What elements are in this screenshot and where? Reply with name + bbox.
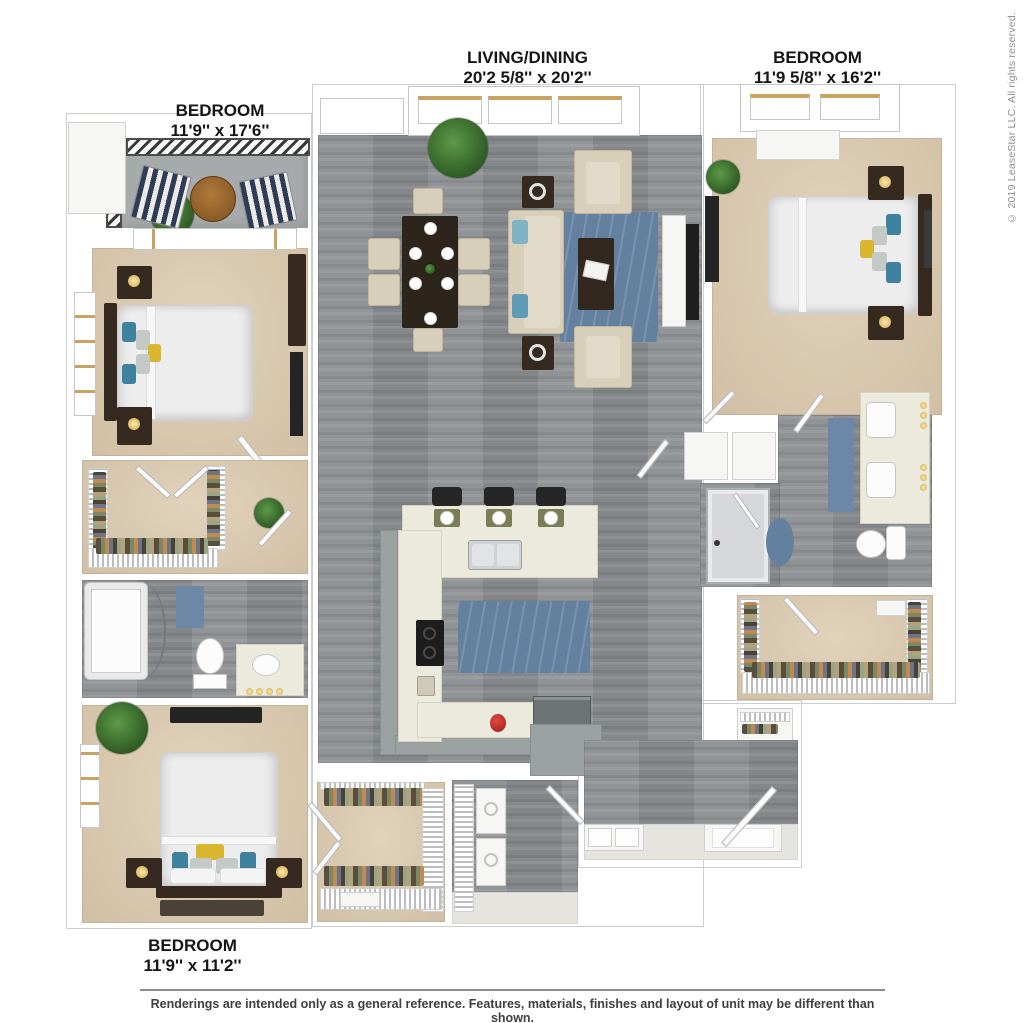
vanity-light — [276, 688, 283, 695]
bath-mat-blue — [176, 586, 204, 628]
toilet — [196, 638, 224, 674]
side-table-decor — [529, 344, 546, 361]
armchair-seat — [586, 336, 620, 378]
bedroom-tl-tv — [290, 352, 303, 436]
place-setting — [441, 277, 454, 290]
room-name: BEDROOM — [735, 48, 900, 68]
balcony-table — [190, 176, 236, 222]
sofa-pillow-teal — [512, 294, 528, 318]
pillow-white — [170, 868, 216, 884]
wall-art-frame — [924, 210, 932, 268]
sink-basin — [497, 544, 519, 566]
bay-window-pane — [488, 96, 552, 124]
bar-plate — [492, 511, 506, 525]
front-door-mat — [712, 828, 774, 848]
bedroom-tl-window-left — [74, 292, 96, 416]
place-setting — [409, 277, 422, 290]
room-name: LIVING/DINING — [430, 48, 625, 68]
kitchen-cabinet-left — [380, 530, 398, 755]
vanity-light — [920, 402, 927, 409]
label-bedroom-bottom: BEDROOM 11'9'' x 11'2'' — [110, 936, 275, 977]
room-dims: 11'9'' x 17'6'' — [120, 121, 320, 141]
pillow-white — [220, 868, 266, 884]
vanity-sink — [866, 402, 896, 438]
lamp — [276, 866, 288, 878]
closet-shelf-box — [340, 892, 380, 907]
hanging-clothes — [96, 538, 208, 554]
dining-chair — [458, 238, 490, 270]
shower-drain — [714, 540, 720, 546]
burner — [423, 627, 436, 640]
dining-chair — [368, 274, 400, 306]
copyright-notice: © 2019 LeaseStar LLC. All rights reserve… — [1006, 12, 1018, 224]
room-name: BEDROOM — [120, 101, 320, 121]
bedroom-tl-dresser — [288, 254, 306, 346]
pillow-teal — [122, 322, 136, 342]
bath-rug-oval — [766, 518, 794, 566]
closet-shelf — [320, 888, 442, 910]
toaster — [417, 676, 435, 696]
closet-shelf — [740, 712, 790, 722]
room-dims: 11'9'' x 11'2'' — [110, 956, 275, 976]
sofa-pillow-teal — [512, 220, 528, 244]
hall-closet — [684, 432, 728, 480]
bedroom-b-tv — [170, 707, 262, 723]
bar-plate — [544, 511, 558, 525]
label-bedroom-top-right: BEDROOM 11'9 5/8'' x 16'2'' — [735, 48, 900, 89]
vanity-sink — [252, 654, 280, 676]
side-table-decor — [529, 183, 546, 200]
lamp — [128, 275, 140, 287]
dining-chair — [413, 328, 443, 352]
hanging-clothes — [207, 470, 220, 546]
toilet — [856, 530, 886, 558]
closet-shelf-box — [876, 600, 906, 616]
lamp — [136, 866, 148, 878]
pillow-teal — [886, 214, 901, 235]
toilet-tank — [193, 674, 227, 689]
vanity-light — [246, 688, 253, 695]
bar-stool — [432, 487, 462, 506]
pillow-teal — [886, 262, 901, 283]
label-living-dining: LIVING/DINING 20'2 5/8'' x 20'2'' — [430, 48, 625, 89]
hanging-clothes — [742, 724, 778, 734]
balcony-planter-box — [68, 122, 126, 214]
vanity-light — [920, 474, 927, 481]
bar-plate — [440, 511, 454, 525]
armchair-seat — [586, 162, 620, 204]
entry-closet-door-panel — [588, 828, 612, 847]
vanity-light — [920, 412, 927, 419]
table-centerpiece — [425, 264, 435, 274]
dining-chair — [368, 238, 400, 270]
bedroom-tr-bench — [756, 130, 840, 160]
pillow-gray — [136, 354, 150, 374]
kitchen-rug — [458, 601, 590, 673]
bedroom-b-window — [80, 744, 100, 828]
vanity-light — [256, 688, 263, 695]
bay-window-pane — [820, 94, 880, 120]
bedroom-b-plant — [96, 702, 148, 754]
room-dims: 11'9 5/8'' x 16'2'' — [735, 68, 900, 88]
place-setting — [424, 222, 437, 235]
room-dims: 20'2 5/8'' x 20'2'' — [430, 68, 625, 88]
place-setting — [409, 247, 422, 260]
pillow-gray — [872, 252, 887, 271]
tv-console — [662, 215, 686, 327]
hanging-clothes — [324, 788, 424, 806]
bay-window-pane — [750, 94, 810, 120]
label-bedroom-top-left: BEDROOM 11'9'' x 17'6'' — [120, 101, 320, 142]
place-setting — [424, 312, 437, 325]
lamp — [879, 176, 891, 188]
bedroom-tr-plant — [706, 160, 740, 194]
living-plant — [428, 118, 488, 178]
bay-window-pane — [558, 96, 622, 124]
bedroom-tl-window-top — [133, 228, 297, 250]
entry-closet-door-panel — [615, 828, 639, 847]
vanity-light — [920, 484, 927, 491]
vanity-light — [920, 422, 927, 429]
bedroom-tr-tv — [705, 196, 719, 282]
dryer-door — [484, 853, 498, 867]
pillow-teal — [122, 364, 136, 384]
vanity-light — [266, 688, 273, 695]
bar-stool — [536, 487, 566, 506]
burner — [423, 646, 436, 659]
entry-floor — [584, 740, 798, 826]
grill-appliance — [533, 696, 591, 726]
kitchen-counter-bottom — [417, 702, 535, 738]
hanging-clothes — [752, 662, 920, 678]
living-tv — [686, 224, 699, 320]
hanging-clothes — [324, 866, 424, 886]
laundry-shelf — [454, 784, 474, 912]
floor-plan-page: BEDROOM 11'9'' x 17'6'' LIVING/DINING 20… — [0, 0, 1023, 1023]
lamp — [879, 316, 891, 328]
dining-chair — [413, 188, 443, 214]
bedroom-b-rug — [160, 900, 264, 916]
bedroom-b-headboard — [156, 886, 282, 898]
toilet-tank — [886, 526, 906, 560]
bedroom-tl-headboard — [104, 303, 117, 421]
sink-basin — [472, 544, 494, 566]
washer-door — [484, 802, 498, 816]
dining-chair — [458, 274, 490, 306]
hall-closet — [732, 432, 776, 480]
sofa-seat — [524, 216, 560, 328]
bar-stool — [484, 487, 514, 506]
lamp — [128, 418, 140, 430]
bath-runner-blue — [828, 418, 854, 512]
disclaimer-text: Renderings are intended only as a genera… — [140, 989, 885, 1023]
vanity-light — [920, 464, 927, 471]
kettle-red — [490, 714, 506, 732]
bedroom-tr-blanket-fold — [798, 198, 807, 312]
living-window-small — [320, 98, 404, 134]
vanity-sink — [866, 462, 896, 498]
deck-chair-right — [238, 171, 297, 230]
place-setting — [441, 247, 454, 260]
pillow-gray — [872, 226, 887, 245]
room-name: BEDROOM — [110, 936, 275, 956]
